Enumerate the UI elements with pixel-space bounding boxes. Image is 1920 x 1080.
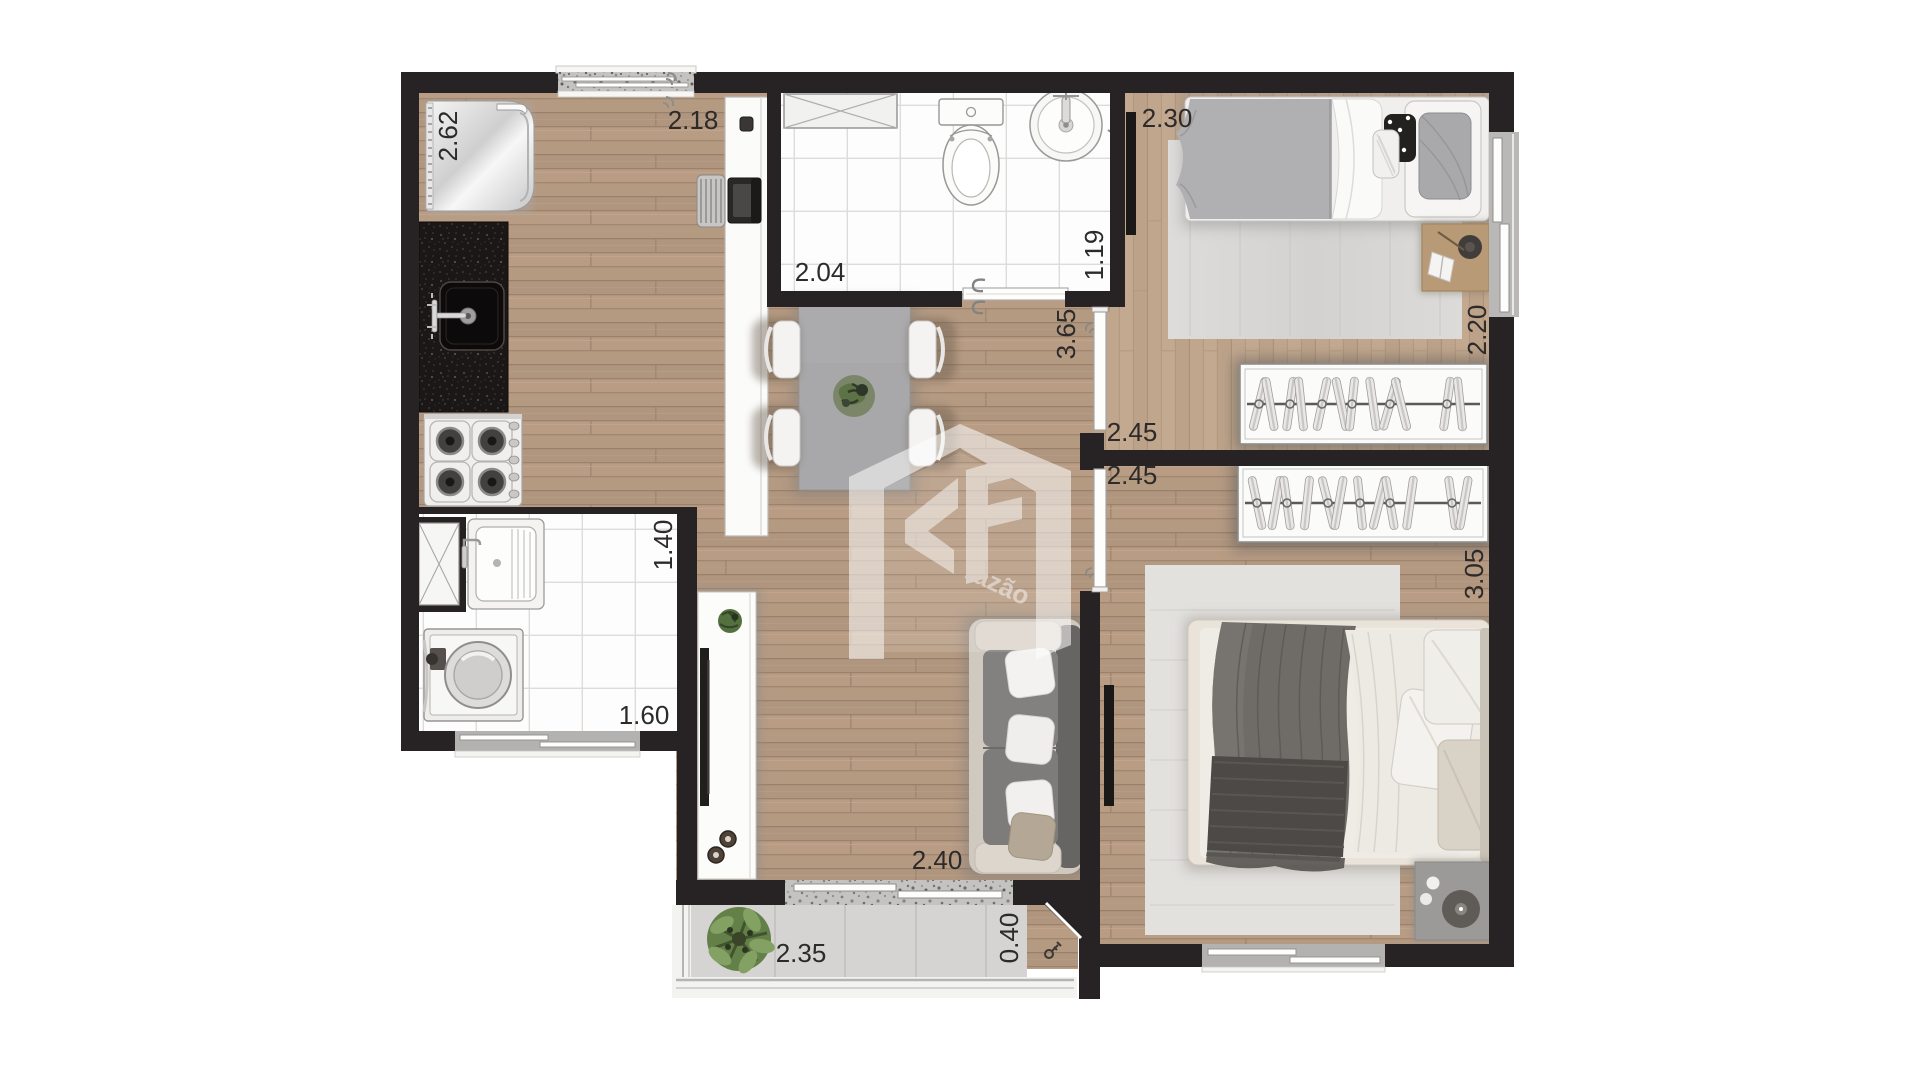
- svg-text:2.04: 2.04: [795, 257, 846, 287]
- svg-text:3.05: 3.05: [1459, 549, 1489, 600]
- svg-text:3.65: 3.65: [1051, 309, 1081, 360]
- svg-text:2.18: 2.18: [668, 105, 719, 135]
- svg-text:2.45: 2.45: [1107, 460, 1158, 490]
- svg-text:2.62: 2.62: [433, 111, 463, 162]
- svg-text:1.19: 1.19: [1079, 230, 1109, 281]
- svg-text:2.35: 2.35: [776, 938, 827, 968]
- svg-text:1.60: 1.60: [619, 700, 670, 730]
- svg-text:2.45: 2.45: [1107, 417, 1158, 447]
- svg-text:0.40: 0.40: [994, 913, 1024, 964]
- svg-text:2.30: 2.30: [1142, 103, 1193, 133]
- svg-text:2.40: 2.40: [912, 845, 963, 875]
- svg-text:1.40: 1.40: [648, 520, 678, 571]
- svg-text:2.20: 2.20: [1462, 305, 1492, 356]
